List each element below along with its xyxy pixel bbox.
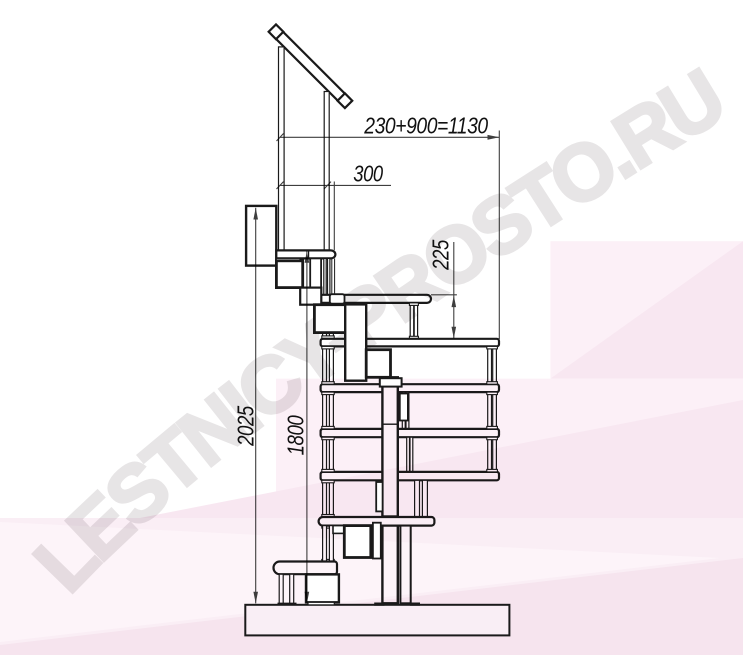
svg-text:230+900=1130: 230+900=1130 bbox=[363, 114, 488, 139]
svg-text:1800: 1800 bbox=[284, 415, 309, 456]
svg-text:2025: 2025 bbox=[234, 405, 259, 446]
svg-text:225: 225 bbox=[429, 239, 454, 270]
svg-text:300: 300 bbox=[353, 162, 383, 187]
